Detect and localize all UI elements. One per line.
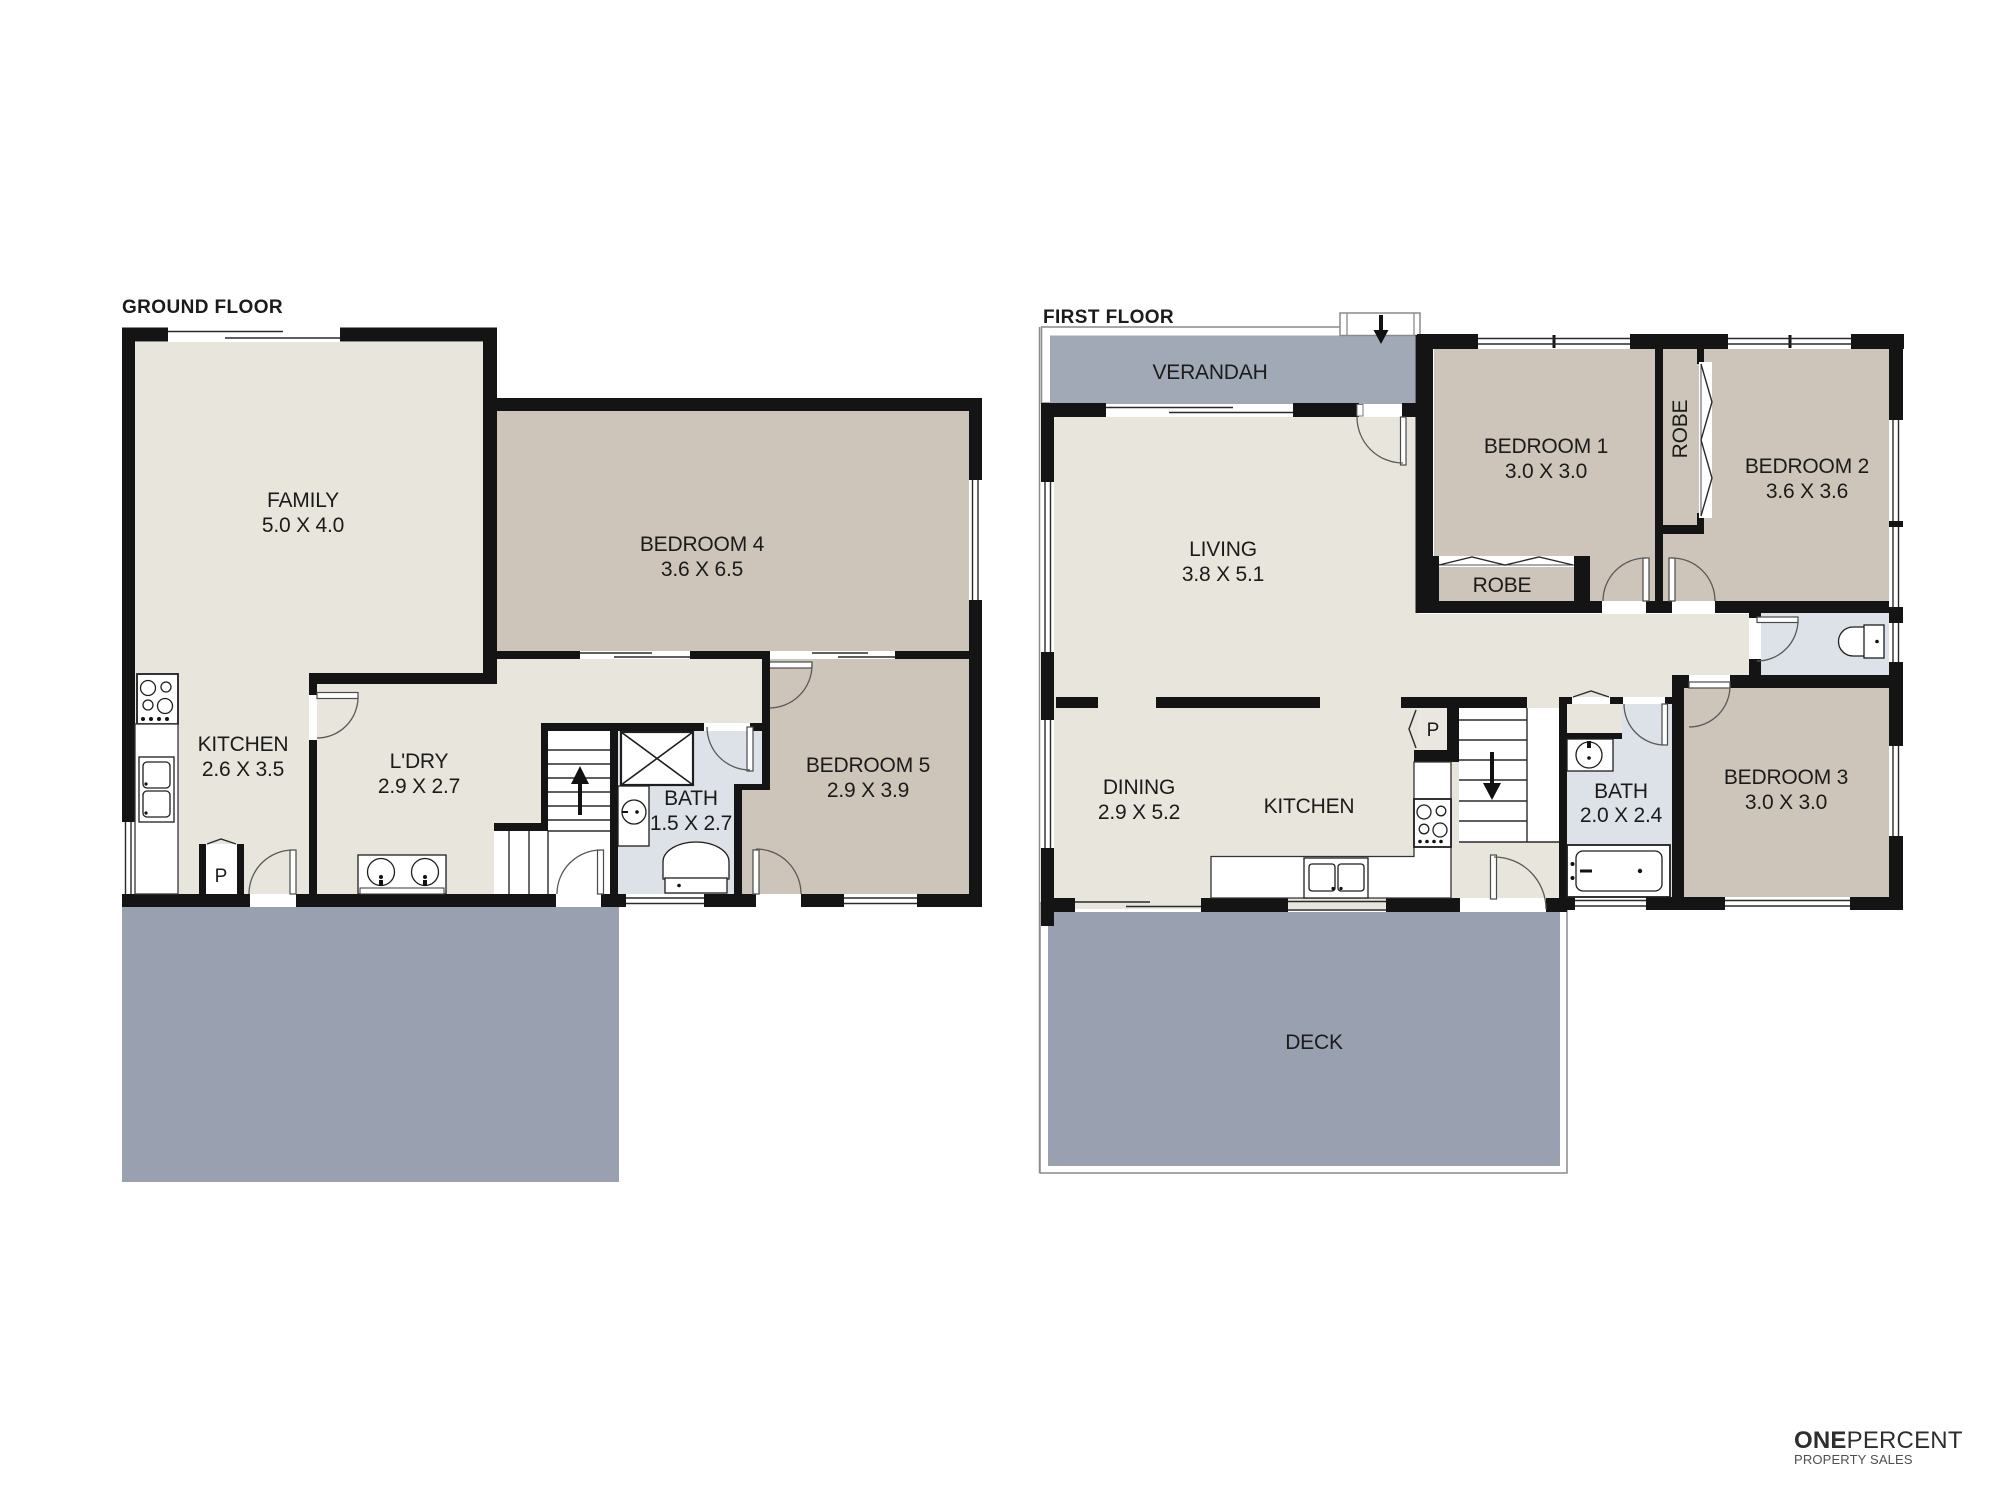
- svg-text:BEDROOM 2: BEDROOM 2: [1745, 455, 1869, 478]
- svg-text:L'DRY: L'DRY: [390, 750, 449, 773]
- svg-text:ROBE: ROBE: [1669, 399, 1692, 458]
- svg-text:3.6 X 3.6: 3.6 X 3.6: [1766, 480, 1848, 503]
- svg-text:P: P: [215, 866, 228, 887]
- svg-text:2.6 X 3.5: 2.6 X 3.5: [202, 758, 284, 781]
- svg-text:P: P: [1427, 720, 1440, 741]
- svg-text:VERANDAH: VERANDAH: [1152, 361, 1267, 384]
- svg-text:FAMILY: FAMILY: [267, 489, 339, 512]
- svg-text:3.6 X 6.5: 3.6 X 6.5: [661, 558, 743, 581]
- svg-text:BEDROOM 3: BEDROOM 3: [1724, 766, 1848, 789]
- svg-text:2.0 X 2.4: 2.0 X 2.4: [1580, 804, 1663, 827]
- svg-text:BEDROOM 4: BEDROOM 4: [640, 533, 765, 556]
- svg-text:2.9 X 3.9: 2.9 X 3.9: [827, 779, 909, 802]
- svg-text:DECK: DECK: [1285, 1031, 1343, 1054]
- svg-text:3.0 X 3.0: 3.0 X 3.0: [1505, 460, 1587, 483]
- svg-text:3.0 X 3.0: 3.0 X 3.0: [1745, 791, 1827, 814]
- svg-text:1.5 X 2.7: 1.5 X 2.7: [650, 812, 732, 835]
- svg-text:KITCHEN: KITCHEN: [198, 733, 289, 756]
- svg-text:FIRST FLOOR: FIRST FLOOR: [1043, 307, 1174, 328]
- svg-text:3.8 X 5.1: 3.8 X 5.1: [1182, 563, 1264, 586]
- svg-text:ONEPERCENT: ONEPERCENT: [1794, 1427, 1963, 1454]
- svg-text:BATH: BATH: [664, 787, 718, 810]
- svg-text:5.0 X 4.0: 5.0 X 4.0: [262, 514, 344, 537]
- svg-text:DINING: DINING: [1103, 776, 1175, 799]
- svg-text:2.9 X 2.7: 2.9 X 2.7: [378, 775, 460, 798]
- svg-text:2.9 X 5.2: 2.9 X 5.2: [1098, 801, 1180, 824]
- svg-text:PROPERTY SALES: PROPERTY SALES: [1794, 1452, 1913, 1467]
- svg-text:BEDROOM 1: BEDROOM 1: [1484, 435, 1608, 458]
- svg-text:KITCHEN: KITCHEN: [1264, 795, 1355, 818]
- svg-text:BATH: BATH: [1594, 780, 1648, 803]
- svg-text:LIVING: LIVING: [1189, 538, 1257, 561]
- svg-text:ROBE: ROBE: [1473, 574, 1532, 597]
- svg-text:BEDROOM 5: BEDROOM 5: [806, 754, 930, 777]
- svg-text:GROUND FLOOR: GROUND FLOOR: [122, 297, 283, 318]
